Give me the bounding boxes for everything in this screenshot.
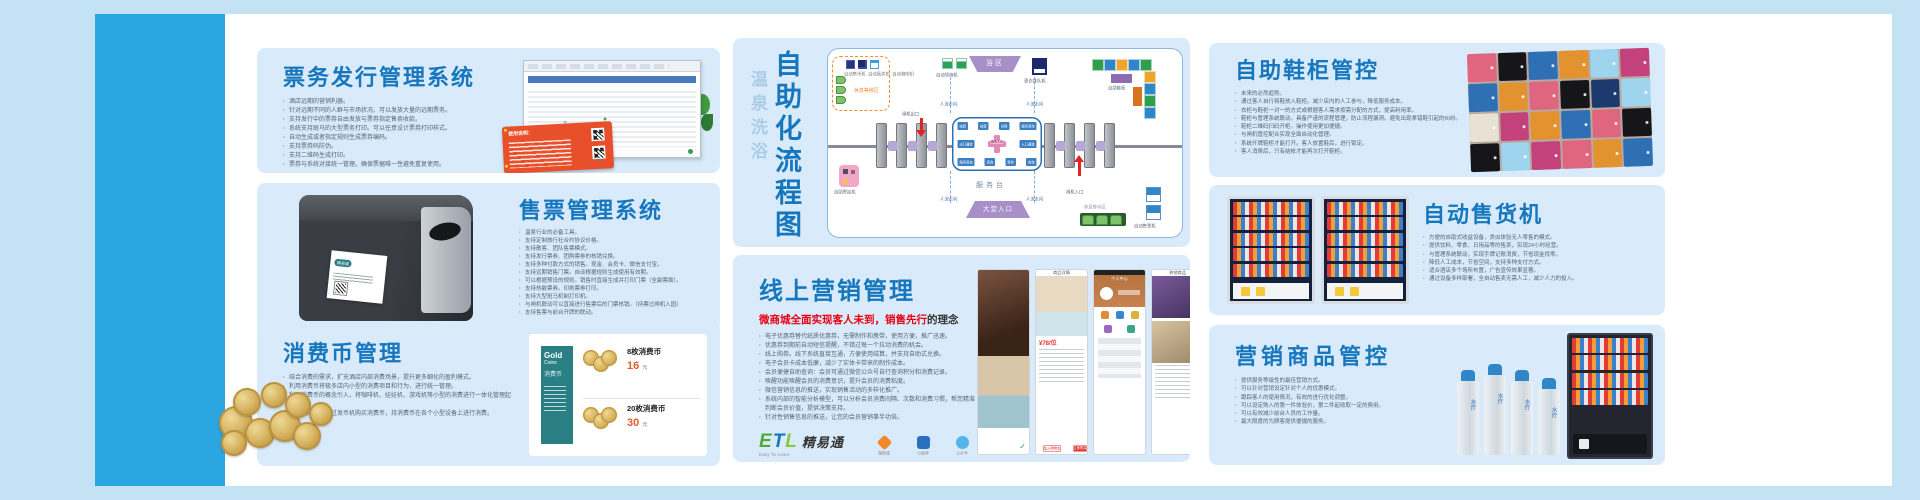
- gate-connector: [888, 141, 897, 151]
- bullet-item: 可以针对营销设定针对个人的优惠模式。: [1235, 385, 1453, 393]
- island-cell: 结算: [958, 122, 969, 130]
- gate-pillar: [1084, 123, 1095, 168]
- qr-code-icon: [591, 128, 605, 142]
- bullet-item: 与闸机管控配合实现全面自动化管理。: [1235, 131, 1467, 139]
- locker-cell: [1592, 109, 1622, 138]
- bullet-item: 票券与系统对接统一管理。确保票据唯一性避免重复使用。: [283, 161, 521, 170]
- coins-icon: [583, 350, 619, 380]
- app-icons: 微商城 小程序 公众号: [869, 436, 977, 459]
- coin-icon: [221, 430, 247, 456]
- coin-price-panel: Gold Coins 消费币 8枚消费币 16 元: [529, 334, 707, 456]
- flowchart-diagram: 自动售币机 自动贩卖机 自动咖啡机 休息等候区 自动领袍机 浴区 更衣排队机 自…: [827, 48, 1183, 238]
- locker-cell: [1561, 110, 1591, 139]
- locker-cell: [1144, 107, 1156, 119]
- seats-icon: [1080, 213, 1126, 226]
- locker-cell: [1500, 112, 1530, 141]
- bottle-row: [1233, 264, 1309, 277]
- bullet-item: 客人消费后，只有结帐才能再次打开鞋柜。: [1235, 148, 1467, 156]
- gold-card-title: Gold: [544, 351, 570, 360]
- bullet-item: 优惠券到期前自动短信提醒，不错过每一个拉动消费的机会。: [759, 342, 977, 351]
- coin-price-text: 20枚消费币 30 元: [627, 403, 697, 429]
- bullet-item: 系统支持斑马的大型票务打印。可以任意设计票券打印样式。: [283, 125, 521, 134]
- bullet-item: 支持发行票券、团购票券的核销兑换。: [519, 254, 711, 262]
- bullet-item: 提供服务等级性的最佳营销方式。: [1235, 377, 1453, 385]
- cube-app-icon: [917, 436, 930, 449]
- section-title: 消费币管理: [283, 336, 521, 368]
- robe-machine-icon: [942, 58, 967, 69]
- coin-dispenser-icon: [846, 60, 855, 69]
- leaf-decoration-icon: [701, 114, 713, 131]
- vending-machine-image: [1227, 196, 1315, 304]
- printer-label-brand: 精易通: [334, 259, 352, 268]
- locker-cell: [1128, 59, 1140, 71]
- etl-cn-name: 精易通: [802, 435, 844, 450]
- price-number: 16: [627, 360, 639, 372]
- bullet-item: 支持定制旅行社合约协议价格。: [519, 238, 711, 246]
- locker-cell: [1144, 95, 1156, 107]
- coin-qty-label: 8枚消费币: [627, 346, 697, 357]
- locker-orange-cabinet: [1133, 87, 1142, 106]
- bullet-list: 未来的必然趋势。 通过客人自行将鞋放入鞋柜。减少店内的人工参与，降低服务成本。 …: [1235, 90, 1467, 156]
- phone-photo-card: ✓: [977, 269, 1030, 455]
- gate-connector: [1096, 141, 1105, 151]
- section-title: 自助鞋柜管控: [1235, 53, 1467, 85]
- poster-panel: 票务发行管理系统 酒店远期的营销利器。 针对远期不同的人群与市场状况。可以发放大…: [225, 14, 1892, 486]
- waiting-area-label: 休息等候区: [854, 87, 879, 94]
- service-desk-label: 服务台: [976, 180, 1006, 190]
- hang-machine-label: 自助寄挂机: [834, 189, 856, 195]
- flow-direction-label: 人流走向: [1026, 196, 1043, 202]
- bottle-row: [1572, 390, 1648, 405]
- usage-card-title: 使用说明：: [508, 127, 577, 138]
- locker-column: [1144, 71, 1156, 119]
- product-buttons: 加入购物车 立即购买: [1036, 443, 1087, 454]
- machine-captions: 自动售币机 自动贩卖机 自动咖啡机: [844, 71, 915, 77]
- coin-icon: [293, 422, 321, 450]
- bullet-item: 自动生成或者指定规则生成票券编码。: [283, 134, 521, 143]
- locker-cell: [1104, 59, 1116, 71]
- price-number: 30: [627, 417, 639, 429]
- profile-menu-row: [1094, 307, 1145, 321]
- gate-pillar: [1104, 123, 1115, 168]
- locker-cell: [1559, 50, 1589, 79]
- locker-cell: [1560, 80, 1590, 109]
- shoe-locker-text: 自助鞋柜管控 未来的必然趋势。 通过客人自行将鞋放入鞋柜。减少店内的人工参与，降…: [1235, 53, 1467, 156]
- coin-icon: [601, 407, 617, 423]
- bullet-item: 适合酒店多个场所布置，广告宣传效果显著。: [1423, 267, 1655, 275]
- locker-row: [1092, 59, 1152, 71]
- bullet-item: 可以根据预设的规则。销售时直接生成并打印门票（全副票面）。: [519, 278, 711, 286]
- ticket-machine-icon: [1146, 205, 1161, 220]
- bullet-item: 与闸机联动可以直接进行售票后的门票核销。（持票过闸机入园）: [519, 302, 711, 310]
- phone-profile-page: 个人中心: [1093, 269, 1146, 455]
- vending-machine-image: [1321, 196, 1409, 304]
- bullet-list: 提供服务等级性的最佳营销方式。 可以针对营销设定针对个人的优惠模式。 跟踪客人的…: [1235, 377, 1453, 427]
- service-island: 结算 结算 兑换 服务咨询 出口通道 服务人员 入口通道 服务咨询 咨询 寄存: [952, 117, 1042, 171]
- locker-cell: [1144, 71, 1156, 83]
- vending-machines-photo: [1227, 193, 1413, 307]
- bullet-item: 可以有效减少前台人员的工作量。: [1235, 410, 1453, 418]
- bottle-label: 水疗: [1486, 393, 1504, 404]
- etl-tagline: Easy To Learn: [759, 453, 839, 458]
- coin-price-row: 8枚消费币 16 元: [583, 342, 701, 392]
- goods-text: 营销商品管控 提供服务等级性的最佳营销方式。 可以针对营销设定针对个人的优惠模式…: [1235, 339, 1453, 427]
- bottle-row: [1572, 338, 1648, 353]
- bottle-row: [1327, 202, 1403, 215]
- coin-icon: [309, 402, 333, 426]
- hot-header: 热销商品: [1162, 270, 1190, 274]
- gold-coins-card: Gold Coins 消费币: [541, 346, 573, 444]
- printer-ticket-label: 精易通: [327, 250, 388, 304]
- locker-cell: [1467, 53, 1497, 82]
- bullet-item: 降低人工成本，节省空间，支持多种支付方式。: [1423, 259, 1655, 267]
- qr-code-icon: [333, 281, 348, 296]
- island-cell: 查询: [1026, 158, 1037, 166]
- vending-machine-icon: [858, 60, 867, 69]
- gate-pillar: [896, 123, 907, 168]
- section-flowchart: 温泉洗浴 自助化流程图 自动售币机 自动贩卖机 自动咖啡机 休息等候区 自动领袍…: [733, 38, 1190, 247]
- app-item: 微商城: [869, 436, 899, 459]
- ticket-machine-label: 自动售票机: [1134, 223, 1156, 229]
- section-vending-machine: 自动售货机 方便的自助式收益设备，类似体验无人零售的模式。 提供饮料、零食、日用…: [1209, 185, 1665, 315]
- app-caption: 公众号: [952, 450, 972, 456]
- bottle-image: 水疗: [1538, 389, 1560, 455]
- coin-icon: [601, 350, 617, 366]
- coin-icon: [261, 382, 287, 408]
- service-cross-icon: 服务人员: [988, 135, 1006, 153]
- locker-cell: [1593, 139, 1623, 168]
- check-icon: ✓: [1019, 442, 1026, 451]
- etl-letter-l: L: [785, 431, 798, 452]
- entry-arrow-icon: [1078, 162, 1081, 176]
- locker-cell: [1116, 59, 1128, 71]
- usage-card-lines: [509, 139, 572, 168]
- island-cell: 入口通道: [1020, 140, 1037, 148]
- locker-cell: [1562, 140, 1592, 169]
- island-cell: 咨询: [985, 158, 996, 166]
- bottle-image: 水疗: [1484, 375, 1506, 455]
- locker-cell: [1470, 143, 1500, 172]
- coin-price-value: 16 元: [627, 360, 697, 372]
- detail-header: 商品详情: [1046, 270, 1077, 274]
- rest-area-label: 休息等待区: [1084, 204, 1106, 210]
- zebra-printer-image: 精易通: [271, 187, 511, 329]
- gate-connector: [1076, 141, 1085, 151]
- etl-letter-e: E: [759, 431, 773, 452]
- menu-icon: [1131, 311, 1139, 319]
- smiley-port-icon: [1335, 287, 1344, 296]
- coin-icon: [285, 392, 311, 418]
- bullet-item: 跟踪客人的使用情况，有效的进行优化调整。: [1235, 394, 1453, 402]
- bullet-item: 最大限度的为顾客提供便捷的服务。: [1235, 418, 1453, 426]
- sphere-app-icon: [956, 436, 969, 449]
- gate-connector: [928, 141, 937, 151]
- flow-direction-label: 人流走向: [1026, 101, 1043, 107]
- app-caption: 小程序: [913, 450, 933, 456]
- bullet-item: 针对性销售信息的推送，让您的会员营销事半功倍。: [759, 414, 977, 423]
- section-title: 票务发行管理系统: [283, 60, 521, 92]
- locker-cell: [1529, 81, 1559, 110]
- island-center-label: 服务人员: [991, 141, 1004, 144]
- ticket-machine-icon: [1146, 187, 1161, 202]
- bullet-item: 衣柜与鞋柜一对一的方式或根据客人需求按需分配的方式，提高利用率。: [1235, 107, 1467, 115]
- marketing-text: 线上营销管理 微商城全面实现客人未到，销售先行的理念 电子优惠券替代纸质优惠券，…: [759, 271, 977, 423]
- bottle-row: [1233, 217, 1309, 230]
- machine-bottom-panel: [1573, 434, 1647, 454]
- bullet-item: 未来的必然趋势。: [1235, 90, 1467, 98]
- machine-icons: [846, 60, 879, 69]
- subtitle-red: 微商城全面实现客人未到，销售先行: [759, 314, 927, 326]
- smiley-port-icon: [1350, 287, 1359, 296]
- bullet-item: 酒店远期的营销利器。: [283, 98, 521, 107]
- bullet-item: 鞋柜二维码扫码开柜。操作使用更加便捷。: [1235, 123, 1467, 131]
- locker-label: 自助鞋柜: [1108, 85, 1125, 91]
- gate-entry-label: 闸机入口: [1066, 189, 1083, 195]
- profile-menu-row: [1094, 321, 1145, 335]
- island-cell: 结算: [978, 122, 989, 130]
- locker-cell: [1528, 51, 1558, 80]
- bullet-item: 支持票券码防伪。: [283, 143, 521, 152]
- bottle-row: [1233, 233, 1309, 246]
- bullet-item: 支持二维码生成打印。: [283, 152, 521, 161]
- island-cell: 服务咨询: [1019, 122, 1036, 130]
- app-item: 小程序: [908, 436, 938, 459]
- bullet-item: 电子会员卡成本低廉，减少了实体卡带来的制作成本。: [759, 360, 977, 369]
- bullet-item: 唤醒功能唤醒会员的消费意识，提升会员的消费粘度。: [759, 378, 977, 387]
- product-description-lines: [1039, 349, 1084, 383]
- waiting-area-box: 自动售币机 自动贩卖机 自动咖啡机 休息等候区: [832, 56, 890, 111]
- locker-cell: [1620, 48, 1650, 77]
- smiley-port-icon: [1241, 287, 1250, 296]
- screenshot-table-header: [528, 76, 696, 83]
- phone-hot-products: 热销商品: [1151, 269, 1190, 455]
- list-lines: [1155, 365, 1190, 399]
- coins-photo: [217, 366, 349, 462]
- locker-cell: [1622, 108, 1652, 137]
- bullet-item: 支持发行中的票券自由发放与票券指定售卖收款。: [283, 116, 521, 125]
- gate-pillar: [876, 123, 887, 168]
- price-unit: 元: [642, 365, 647, 371]
- bullet-item: 电子优惠券替代纸质优惠券，无需制作和携带，使用方便，推广迅速。: [759, 333, 977, 342]
- flow-direction-label: 人流走向: [940, 101, 957, 107]
- confetti-decoration: [504, 129, 507, 132]
- island-cell: 出口通道: [958, 140, 975, 148]
- flow-dashed-line: [1034, 77, 1035, 113]
- menu-icon: [1104, 325, 1112, 333]
- locker-cell: [1498, 52, 1528, 81]
- locker-cell: [1140, 59, 1152, 71]
- bullet-item: 微信营销信息的推送，实现销售活动的多样化推广。: [759, 387, 977, 396]
- phone-screenshots: ✓ 商品详情 ¥78/位 加入购物车 立即购买 个人中心: [977, 269, 1190, 455]
- gate-exit-label: 闸机出口: [902, 111, 919, 117]
- vending-text: 自动售货机 方便的自助式收益设备，类似体验无人零售的模式。 提供饮料、零食、日用…: [1423, 197, 1655, 284]
- section-shoe-locker: 自助鞋柜管控 未来的必然趋势。 通过客人自行将鞋放入鞋柜。减少店内的人工参与，降…: [1209, 43, 1665, 177]
- queue-machine-icon: [1032, 58, 1047, 75]
- bullet-item: 会员便捷自助查询：会员可通过微信公众号自行查询积分和消费记录。: [759, 369, 977, 378]
- coin-price-value: 30 元: [627, 417, 697, 429]
- coin-icon: [233, 388, 261, 416]
- bottle-row: [1572, 373, 1648, 388]
- bottle-image: 水疗: [1457, 381, 1479, 455]
- bullet-list: 电子优惠券替代纸质优惠券，无需制作和携带，使用方便，推广迅速。 优惠券到期前自动…: [759, 333, 977, 423]
- bottle-row: [1327, 233, 1403, 246]
- bottle-row: [1327, 248, 1403, 261]
- hall-entrance: 大堂入口: [966, 201, 1030, 218]
- machine-caption: 自动贩卖机: [868, 72, 890, 76]
- locker-cell: [1092, 59, 1104, 71]
- bullet-list: 方便的自助式收益设备，类似体验无人零售的模式。 提供饮料、零食、日用品等的售卖，…: [1423, 234, 1655, 284]
- bullet-item: 针对远期不同的人群与市场状况。可以发放大量的远期票务。: [283, 107, 521, 116]
- section-title: 营销商品管控: [1235, 339, 1453, 371]
- bullet-item: 通过客人自行将鞋放入鞋柜。减少店内的人工参与，降低服务成本。: [1235, 98, 1467, 106]
- bottle-row: [1327, 217, 1403, 230]
- spa-pool-photo: [978, 356, 1029, 428]
- bottle-row: [1233, 202, 1309, 215]
- locker-label-box: [1111, 74, 1132, 83]
- machine-bottom-panel: [1327, 283, 1403, 299]
- bullet-item: 通过设备多样部署，全自动售卖无需人工，减少人力的投入。: [1423, 275, 1655, 283]
- bottle-image: 水疗: [1511, 381, 1533, 455]
- left-blue-band: [95, 14, 225, 486]
- bath-product-photo: [1036, 276, 1087, 336]
- island-cell: 服务咨询: [958, 158, 975, 166]
- bullet-item: 支持远期销售门票。自动根据规则生成使用有效期。: [519, 270, 711, 278]
- gold-card-cn: 消费币: [544, 369, 570, 378]
- bullet-item: 支持大型斑马机制打印机。: [519, 294, 711, 302]
- locker-cell: [1501, 142, 1531, 171]
- bullet-item: 提供饮料、零食、日用品等的售卖，实现24小时经营。: [1423, 242, 1655, 250]
- robe-machine-label: 自动领袍机: [936, 72, 958, 78]
- buy-now-button: 立即购买: [1073, 445, 1086, 451]
- ticket-issuing-text: 票务发行管理系统 酒店远期的营销利器。 针对远期不同的人群与市场状况。可以发放大…: [283, 60, 521, 170]
- menu-icon: [1127, 325, 1135, 333]
- bullet-item: 系统内部的智能分析模型，可以分析会员消费间隔、次数和消费习惯，帮您精准判断会员价…: [759, 396, 977, 414]
- gate-connector: [908, 141, 917, 151]
- island-cell: 寄存: [1005, 158, 1016, 166]
- room-photo: [1152, 321, 1190, 363]
- bullet-item: 与管理系统联动，实现手牌记账消费，节省现金找零。: [1423, 251, 1655, 259]
- bullet-item: 温泉行业的必备工具。: [519, 230, 711, 238]
- gate-pillar: [1044, 123, 1055, 168]
- spa-bottles-photo: 水疗 水疗 水疗 水疗: [1457, 349, 1563, 459]
- machine-caption: 自动咖啡机: [892, 72, 914, 76]
- coin-price-text: 8枚消费币 16 元: [627, 346, 697, 372]
- bath-zone: 浴区: [969, 56, 1021, 72]
- room-photo: [1152, 276, 1190, 318]
- gate-connector: [1056, 141, 1065, 151]
- marketing-subtitle: 微商城全面实现客人未到，销售先行的理念: [759, 312, 977, 327]
- avatar: [1100, 287, 1113, 300]
- bottle-row: [1233, 248, 1309, 261]
- bullet-item: 鞋柜与管理系统联动。具备严谨的流程管理，防止流程漏洞。避免出现拿错鞋引起的纠纷。: [1235, 115, 1467, 123]
- usage-instruction-card: 使用说明：: [502, 121, 614, 173]
- phone-product-detail: 商品详情 ¥78/位 加入购物车 立即购买: [1035, 269, 1088, 455]
- subtitle-dark: 的理念: [927, 314, 959, 326]
- vending-machine-photo: [1567, 333, 1653, 459]
- screenshot-toolbar: [524, 61, 700, 72]
- bullet-item: 方便的自助式收益设备，类似体验无人零售的模式。: [1423, 234, 1655, 242]
- smiley-port-icon: [1256, 287, 1265, 296]
- section-title: 售票管理系统: [519, 193, 711, 225]
- shoe-locker-photo: [1467, 48, 1653, 172]
- island-cell: 兑换: [999, 122, 1010, 130]
- section-title: 自动售货机: [1423, 197, 1655, 229]
- bottle-label: 水疗: [1540, 407, 1558, 418]
- coin-qty-label: 20枚消费币: [627, 403, 697, 414]
- flow-direction-label: 人流走向: [940, 196, 957, 202]
- section-title: 线上营销管理: [759, 271, 977, 306]
- coffee-machine-icon: [870, 60, 879, 69]
- machine-bottom-panel: [1233, 283, 1309, 299]
- exit-arrow-icon: [920, 118, 923, 131]
- bullet-item: 支持热敏票券。印刷票券打印。: [519, 286, 711, 294]
- profile-title: 个人中心: [1104, 276, 1135, 282]
- app-item: 公众号: [947, 436, 977, 459]
- bullet-item: 支持多种付款方式的销售。现金、会员卡、微信支付宝。: [519, 262, 711, 270]
- etl-letters: ETL精易通: [759, 431, 859, 453]
- menu-icon: [1101, 311, 1109, 319]
- bullet-list: 温泉行业的必备工具。 支持定制旅行社合约协议价格。 支持散客、团队售票模式。 支…: [519, 230, 711, 318]
- bullet-item: 可以设定购入的第一件体验价，第二件起收取一定的费用。: [1235, 402, 1453, 410]
- bullet-list: 酒店远期的营销利器。 针对远期不同的人群与市场状况。可以发放大量的远期票务。 支…: [283, 98, 521, 170]
- bottle-label: 水疗: [1513, 399, 1531, 410]
- locker-cell: [1144, 83, 1156, 95]
- profile-name-line: [1118, 290, 1140, 295]
- etl-logo: ETL精易通 Easy To Learn: [759, 431, 859, 459]
- section-ticket-sales: 精易通 售票管理系统 温泉行业的必备工具。 支持定制旅行社合约协议价格。 支持散…: [257, 183, 720, 332]
- flow-dashed-line: [950, 77, 951, 113]
- profile-content-lines: [1098, 338, 1141, 378]
- menu-icon: [1116, 311, 1124, 319]
- app-caption: 微商城: [874, 450, 894, 456]
- hang-machine-icon: [839, 165, 859, 187]
- profile-header: 个人中心: [1094, 275, 1145, 307]
- coin-price-row: 20枚消费币 30 元: [583, 398, 701, 448]
- bullet-item: 线上购券。线下系统直接互通，方便使用结算，并支持自助式兑换。: [759, 351, 977, 360]
- locker-cell: [1530, 111, 1560, 140]
- gate-pillar: [936, 123, 947, 168]
- diamond-app-icon: [876, 435, 892, 451]
- bottle-label: 水疗: [1459, 399, 1477, 410]
- bullet-item: 支持散客、团队售票模式。: [519, 246, 711, 254]
- flowchart-title: 自助化流程图: [767, 50, 806, 242]
- locker-cell: [1621, 78, 1651, 107]
- locker-cell: [1591, 79, 1621, 108]
- locker-cell: [1499, 82, 1529, 111]
- locker-cell: [1623, 138, 1653, 167]
- locker-cell: [1469, 113, 1499, 142]
- qr-code-icon: [592, 146, 606, 160]
- locker-cell: [1468, 83, 1498, 112]
- add-to-cart-button: 加入购物车: [1043, 445, 1061, 451]
- machine-caption: 自动售币机: [844, 72, 866, 76]
- section-ticket-issuing: 票务发行管理系统 酒店远期的营销利器。 针对远期不同的人群与市场状况。可以发放大…: [257, 48, 720, 173]
- section-goods-control: 营销商品管控 提供服务等级性的最佳营销方式。 可以针对营销设定针对个人的优惠模式…: [1209, 325, 1665, 465]
- seats-icon: [836, 76, 846, 106]
- locker-cell: [1590, 49, 1620, 78]
- bottle-row: [1572, 355, 1648, 370]
- coins-icon: [583, 407, 619, 437]
- price-unit: 元: [642, 422, 647, 428]
- product-price: ¥78/位: [1036, 336, 1087, 347]
- bullet-item: 系统开牌鞋柜才能打开。客人放置鞋后，进行锁定。: [1235, 140, 1467, 148]
- gold-card-subtitle: Coins: [544, 360, 570, 366]
- spa-massage-photo: [978, 270, 1029, 356]
- etl-letter-t: T: [773, 431, 786, 452]
- section-online-marketing: 线上营销管理 微商城全面实现客人未到，销售先行的理念 电子优惠券替代纸质优惠券，…: [733, 255, 1190, 462]
- gold-card-lines: [544, 386, 566, 412]
- ticket-sales-text: 售票管理系统 温泉行业的必备工具。 支持定制旅行社合约协议价格。 支持散客、团队…: [519, 193, 711, 318]
